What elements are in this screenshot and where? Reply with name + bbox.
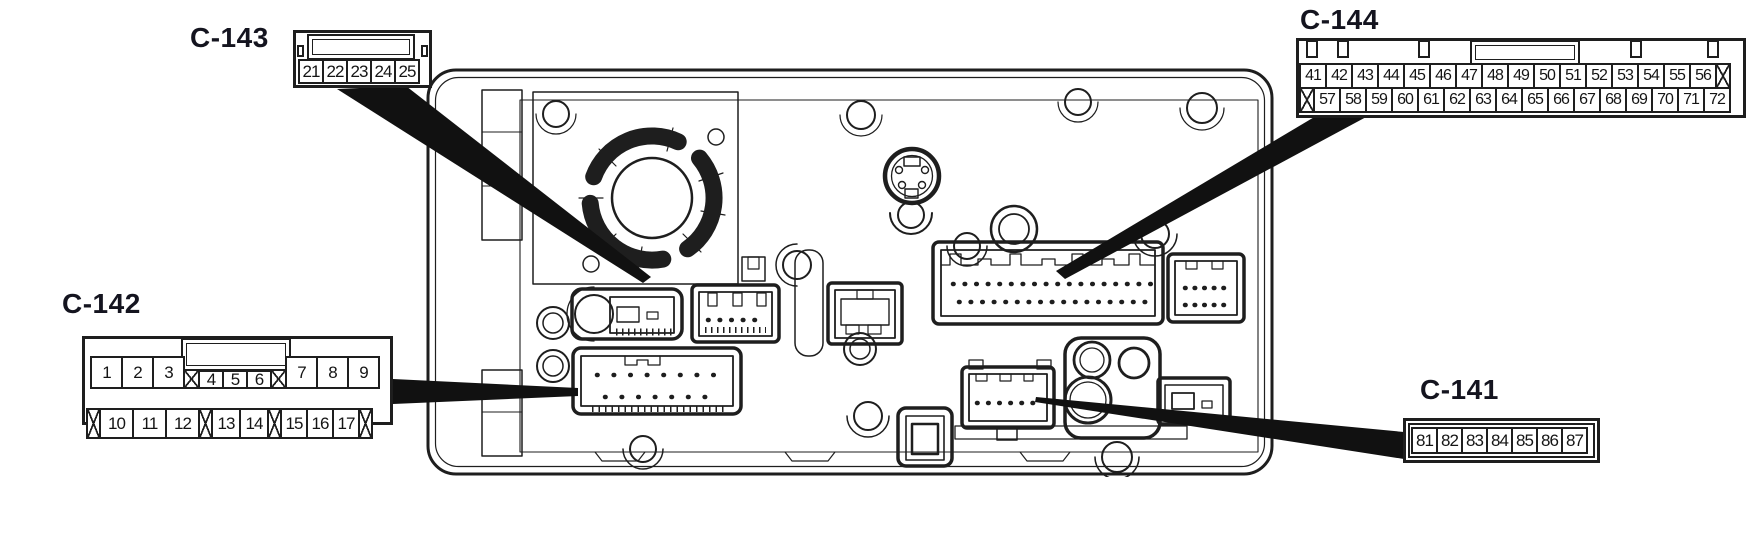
c142-latch-tab	[181, 338, 291, 371]
pin-cell: 17	[332, 408, 360, 439]
pin-cell: 66	[1547, 87, 1575, 113]
pin-cell: 56	[1689, 63, 1717, 89]
connector-label-c143: C-143	[190, 22, 269, 54]
c144-latch-tab	[1470, 40, 1580, 65]
pin-cell: 45	[1403, 63, 1431, 89]
connector-label-c141: C-141	[1420, 374, 1499, 406]
pin-cell: 43	[1351, 63, 1379, 89]
c143-notch-left	[297, 45, 304, 57]
pin-cell: 70	[1651, 87, 1679, 113]
connector-pinout-c142: 123456789 1011121314151617	[82, 336, 393, 425]
pin-cell: 10	[99, 408, 134, 439]
leader-line-c144	[1056, 116, 1368, 279]
pin-cell: 8	[316, 356, 349, 389]
c144-tab	[1707, 40, 1719, 58]
c141-pin-row: 81828384858687	[1408, 423, 1595, 458]
pin-cell: 61	[1417, 87, 1445, 113]
pin-cell: 72	[1703, 87, 1731, 113]
pin-cell: 4	[198, 370, 224, 389]
c144-housing-top	[1299, 41, 1743, 63]
connector-pinout-c143: 2122232425	[293, 30, 432, 88]
pin-cell: 65	[1521, 87, 1549, 113]
pin-cell: 12	[165, 408, 200, 439]
pin-cell: 41	[1299, 63, 1327, 89]
pin-cell: 44	[1377, 63, 1405, 89]
pin-cell: 50	[1533, 63, 1561, 89]
c144-tab	[1337, 40, 1349, 58]
pin-cell: 83	[1461, 427, 1488, 454]
pin-cell: 23	[346, 59, 372, 84]
c143-pin-row: 2122232425	[298, 59, 420, 84]
connector-pinout-c144: 41424344454647484950515253545556 5758596…	[1296, 38, 1746, 118]
connector-label-c142: C-142	[62, 288, 141, 320]
pin-cell: 15	[280, 408, 308, 439]
pin-cell: 51	[1559, 63, 1587, 89]
pin-cell: 2	[121, 356, 154, 389]
pin-cell: 53	[1611, 63, 1639, 89]
pin-cell: 16	[306, 408, 334, 439]
pin-cell: 52	[1585, 63, 1613, 89]
pin-cell: 24	[370, 59, 396, 84]
pin-cell: 67	[1573, 87, 1601, 113]
pin-cell: 7	[285, 356, 318, 389]
pin-cell: 85	[1511, 427, 1538, 454]
pin-cell: 48	[1481, 63, 1509, 89]
pin-cell: 86	[1536, 427, 1563, 454]
pin-cell: 14	[239, 408, 269, 439]
pin-cell: 71	[1677, 87, 1705, 113]
pin-cell: 42	[1325, 63, 1353, 89]
pin-cell: 46	[1429, 63, 1457, 89]
leader-line-c143	[337, 86, 651, 283]
pin-cell: 3	[152, 356, 185, 389]
c143-housing-tab	[307, 34, 415, 60]
pin-cell: 25	[394, 59, 420, 84]
pin-cell: 69	[1625, 87, 1653, 113]
c144-tab	[1630, 40, 1642, 58]
c144-pin-row-2: 57585960616263646566676869707172	[1299, 87, 1743, 113]
pin-cell: 84	[1486, 427, 1513, 454]
pin-cell: 54	[1637, 63, 1665, 89]
pin-cell: 59	[1365, 87, 1393, 113]
pin-cell: 57	[1313, 87, 1341, 113]
c144-pin-row-1: 41424344454647484950515253545556	[1299, 63, 1743, 89]
c142-pin-row-2: 1011121314151617	[85, 408, 390, 439]
pin-cell: 63	[1469, 87, 1497, 113]
c144-tab	[1418, 40, 1430, 58]
pin-cell: 87	[1561, 427, 1588, 454]
pin-cell: 68	[1599, 87, 1627, 113]
pin-cell: 1	[90, 356, 123, 389]
pin-cell: 5	[222, 370, 248, 389]
pin-cell: 55	[1663, 63, 1691, 89]
pin-cell: 21	[298, 59, 324, 84]
pin-cell: 13	[211, 408, 241, 439]
connector-label-c144: C-144	[1300, 4, 1379, 36]
pin-cell: 82	[1436, 427, 1463, 454]
pin-cell: 9	[347, 356, 380, 389]
pin-cell: 81	[1411, 427, 1438, 454]
leader-line-c142	[393, 379, 578, 404]
c143-notch-right	[421, 45, 428, 57]
c144-tab	[1306, 40, 1318, 58]
diagram-canvas: C-143 2122232425 C-144 41424344454647484…	[0, 0, 1749, 540]
pin-cell: 6	[246, 370, 272, 389]
pin-cell: 49	[1507, 63, 1535, 89]
blocked-pin-cell	[358, 408, 373, 439]
blocked-pin-cell	[1715, 63, 1731, 89]
pin-cell: 11	[132, 408, 167, 439]
pin-cell: 47	[1455, 63, 1483, 89]
leader-line-c141	[1035, 397, 1404, 459]
pin-cell: 60	[1391, 87, 1419, 113]
pin-cell: 64	[1495, 87, 1523, 113]
connector-pinout-c141: 81828384858687	[1403, 418, 1600, 463]
pin-cell: 62	[1443, 87, 1471, 113]
pin-cell: 22	[322, 59, 348, 84]
pin-cell: 58	[1339, 87, 1367, 113]
